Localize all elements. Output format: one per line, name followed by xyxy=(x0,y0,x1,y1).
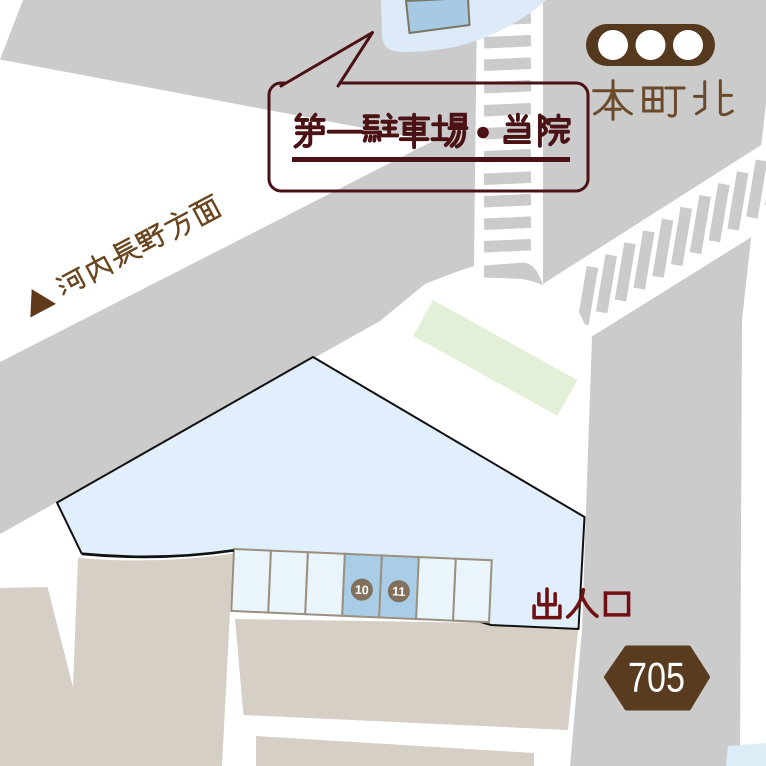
svg-text:11: 11 xyxy=(392,584,406,599)
svg-text:10: 10 xyxy=(355,583,370,598)
svg-text:705: 705 xyxy=(628,654,685,701)
